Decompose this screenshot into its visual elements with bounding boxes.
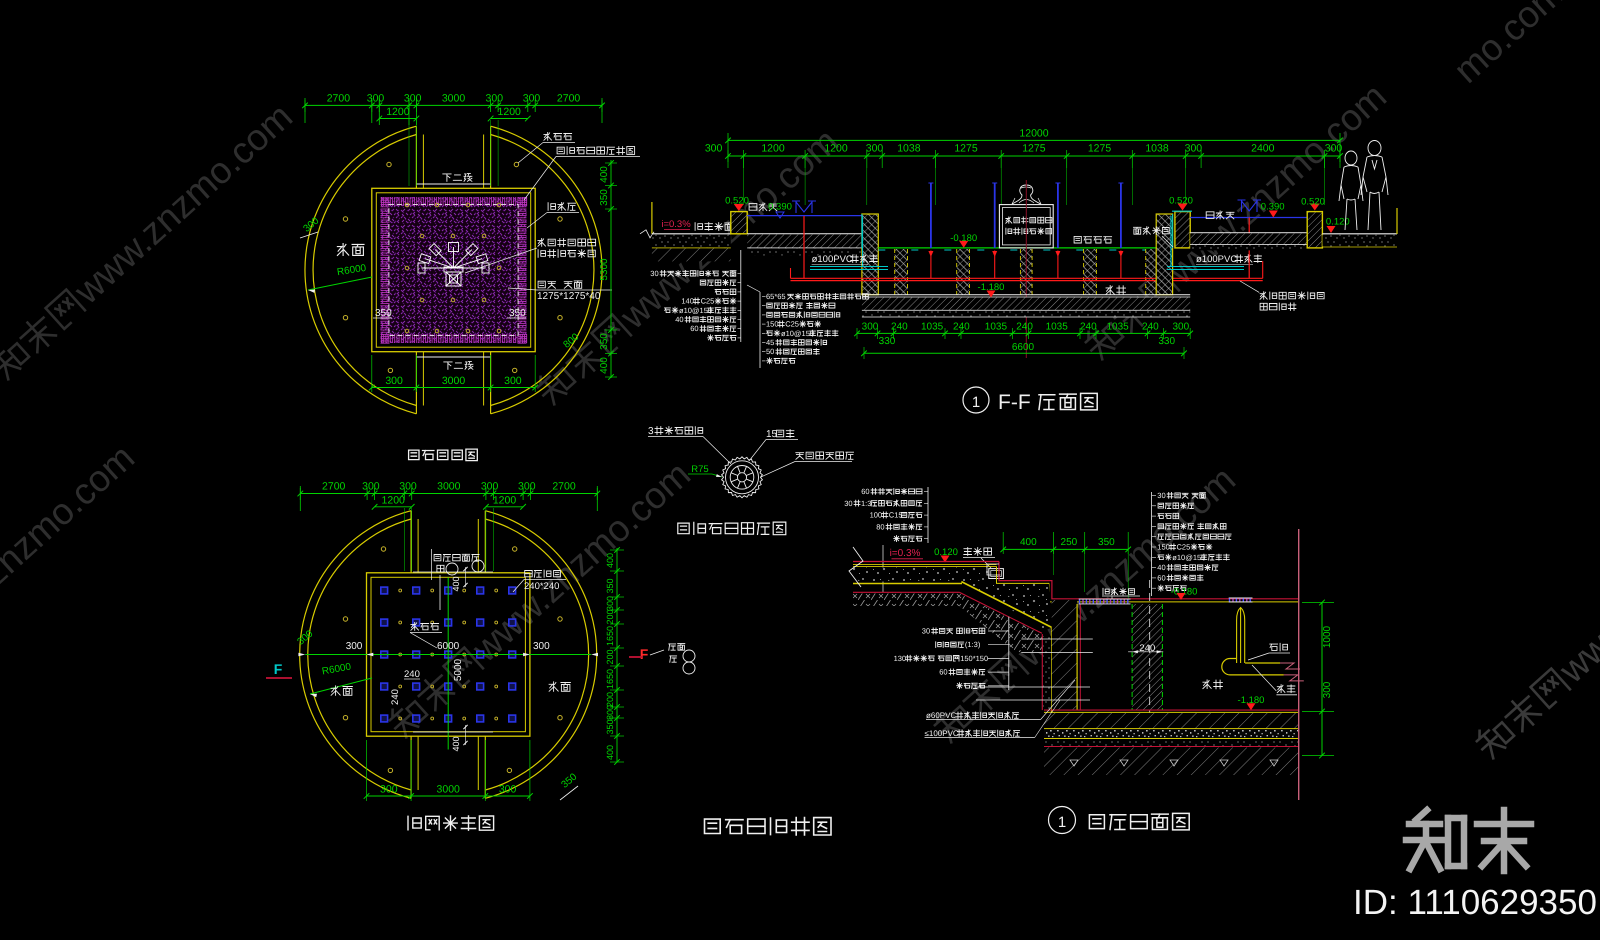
- svg-text:1275: 1275: [1022, 143, 1046, 155]
- svg-text:300: 300: [481, 481, 499, 493]
- svg-text:1: 1: [1058, 814, 1066, 831]
- svg-text:F: F: [640, 646, 649, 662]
- svg-text:1038: 1038: [1145, 143, 1169, 155]
- svg-text:60: 60: [1157, 573, 1165, 582]
- svg-text:0.390: 0.390: [768, 201, 792, 212]
- svg-text:ø10@150: ø10@150: [781, 329, 814, 338]
- svg-text:1275: 1275: [954, 143, 978, 155]
- svg-text:i=0.3%: i=0.3%: [890, 548, 921, 559]
- svg-text:400: 400: [599, 357, 610, 374]
- svg-text:300: 300: [499, 784, 517, 796]
- svg-text:1200: 1200: [761, 143, 785, 155]
- svg-text:350: 350: [1098, 537, 1115, 548]
- svg-text:300: 300: [399, 481, 417, 493]
- svg-text:400: 400: [451, 736, 461, 751]
- svg-text:400: 400: [605, 745, 615, 760]
- svg-text:45: 45: [766, 338, 774, 347]
- svg-text:0.520: 0.520: [725, 195, 749, 206]
- svg-text:3000: 3000: [437, 784, 461, 796]
- svg-text:50: 50: [766, 347, 774, 356]
- svg-text:C25: C25: [1177, 543, 1191, 552]
- svg-text:60: 60: [861, 487, 869, 496]
- svg-text:1035: 1035: [921, 322, 944, 333]
- svg-text:300: 300: [862, 322, 879, 333]
- svg-text:6000: 6000: [437, 641, 460, 652]
- svg-text:30: 30: [1157, 491, 1165, 500]
- svg-text:800: 800: [605, 705, 615, 720]
- svg-text:400: 400: [605, 553, 615, 568]
- svg-text:15: 15: [766, 429, 778, 440]
- svg-text:30: 30: [844, 499, 852, 508]
- svg-text:300: 300: [523, 93, 541, 105]
- svg-text:1650: 1650: [605, 626, 615, 646]
- svg-text:140: 140: [681, 297, 694, 306]
- svg-text:1035: 1035: [1046, 322, 1069, 333]
- svg-text:1200: 1200: [386, 106, 410, 118]
- svg-text:ø100PVC: ø100PVC: [812, 254, 853, 265]
- svg-text:2700: 2700: [552, 481, 576, 493]
- svg-text:ø10@150: ø10@150: [679, 306, 712, 315]
- svg-text:0.520: 0.520: [1169, 195, 1193, 206]
- svg-text:300: 300: [1185, 143, 1203, 155]
- svg-text:330: 330: [1158, 336, 1175, 347]
- svg-text:300: 300: [404, 93, 422, 105]
- svg-text:1650: 1650: [605, 669, 615, 689]
- svg-text:3000: 3000: [442, 375, 466, 387]
- svg-text:200: 200: [605, 692, 615, 707]
- svg-text:300: 300: [362, 481, 380, 493]
- svg-text:C25: C25: [785, 320, 799, 329]
- svg-text:300: 300: [385, 375, 403, 387]
- svg-text:i=0.3%: i=0.3%: [661, 219, 691, 230]
- svg-text:3: 3: [648, 426, 654, 437]
- svg-text:240: 240: [1080, 322, 1097, 333]
- svg-text:350: 350: [509, 308, 526, 319]
- svg-text:-0.180: -0.180: [1171, 587, 1198, 598]
- svg-text:250: 250: [1061, 537, 1078, 548]
- svg-text:1200: 1200: [493, 494, 517, 506]
- svg-text:2700: 2700: [557, 93, 581, 105]
- svg-text:12000: 12000: [1019, 128, 1048, 140]
- svg-text:C15: C15: [889, 511, 903, 520]
- svg-text:400: 400: [599, 166, 610, 183]
- svg-text:ID: 1110629350: ID: 1110629350: [1353, 883, 1597, 922]
- svg-text:2400: 2400: [1251, 143, 1275, 155]
- svg-text:130: 130: [894, 654, 907, 663]
- svg-text:330: 330: [879, 336, 896, 347]
- svg-text:0.520: 0.520: [1301, 197, 1325, 208]
- svg-text:30: 30: [650, 269, 658, 278]
- svg-text:400: 400: [1020, 537, 1037, 548]
- svg-text:100: 100: [870, 511, 883, 520]
- svg-text:300: 300: [533, 641, 550, 652]
- svg-text:150: 150: [766, 320, 779, 329]
- svg-text:300: 300: [605, 596, 615, 611]
- svg-text:80: 80: [876, 522, 884, 531]
- svg-text:300: 300: [1172, 322, 1189, 333]
- svg-text:F: F: [274, 661, 283, 677]
- svg-text:ø100PVC: ø100PVC: [1196, 254, 1237, 265]
- svg-text:300: 300: [1322, 681, 1333, 698]
- svg-text:30: 30: [922, 627, 930, 636]
- svg-text:40: 40: [675, 315, 683, 324]
- svg-text:ø60PVC: ø60PVC: [926, 711, 956, 720]
- svg-text:65*65: 65*65: [766, 292, 786, 301]
- svg-text:F-F: F-F: [998, 391, 1031, 414]
- svg-text:1038: 1038: [897, 143, 921, 155]
- svg-text:3000: 3000: [437, 481, 461, 493]
- svg-text:≤100PVC: ≤100PVC: [925, 729, 959, 738]
- svg-text:2700: 2700: [327, 93, 351, 105]
- svg-text:400: 400: [451, 576, 461, 591]
- svg-text:300: 300: [705, 143, 723, 155]
- svg-text:150: 150: [1157, 543, 1170, 552]
- svg-text:300: 300: [504, 375, 522, 387]
- svg-text:200: 200: [605, 609, 615, 624]
- svg-text:240: 240: [404, 669, 420, 680]
- svg-text:240: 240: [953, 322, 970, 333]
- svg-text:350: 350: [375, 308, 392, 319]
- svg-text:1200: 1200: [498, 106, 522, 118]
- svg-text:300: 300: [1325, 143, 1343, 155]
- svg-text:1200: 1200: [824, 143, 848, 155]
- svg-text:350: 350: [599, 189, 610, 206]
- svg-text:1:3: 1:3: [861, 499, 871, 508]
- svg-text:300: 300: [486, 93, 504, 105]
- svg-text:300: 300: [367, 93, 385, 105]
- svg-text:(1:3): (1:3): [965, 640, 981, 649]
- svg-text:240: 240: [1142, 322, 1159, 333]
- svg-text:200: 200: [605, 649, 615, 664]
- svg-text:350: 350: [605, 578, 615, 593]
- svg-text:1000: 1000: [1322, 625, 1333, 648]
- svg-text:240*240: 240*240: [524, 581, 559, 592]
- svg-text:300: 300: [518, 481, 536, 493]
- svg-text:240: 240: [1016, 322, 1033, 333]
- svg-text:60: 60: [690, 324, 698, 333]
- svg-text:300: 300: [380, 784, 398, 796]
- svg-text:240: 240: [390, 689, 401, 705]
- svg-text:3000: 3000: [442, 93, 466, 105]
- svg-text:300: 300: [866, 143, 884, 155]
- svg-text:240: 240: [891, 322, 908, 333]
- svg-text:150*150: 150*150: [960, 654, 988, 663]
- svg-text:5300: 5300: [599, 258, 610, 281]
- svg-text:350: 350: [605, 719, 615, 734]
- svg-text:350: 350: [599, 333, 610, 350]
- svg-text:R75: R75: [691, 464, 708, 475]
- svg-text:ø10@150: ø10@150: [1172, 553, 1205, 562]
- svg-text:1035: 1035: [1106, 322, 1129, 333]
- svg-text:60: 60: [939, 668, 947, 677]
- svg-text:C25: C25: [701, 297, 715, 306]
- svg-text:1200: 1200: [382, 494, 406, 506]
- svg-text:1275: 1275: [1088, 143, 1112, 155]
- svg-text:40: 40: [1157, 563, 1165, 572]
- svg-text:300: 300: [346, 641, 363, 652]
- svg-text:240: 240: [1139, 643, 1155, 654]
- svg-text:1035: 1035: [985, 322, 1008, 333]
- svg-text:2700: 2700: [322, 481, 346, 493]
- svg-text:5000: 5000: [453, 658, 464, 681]
- svg-text:1: 1: [972, 394, 980, 411]
- svg-text:1275*1275*40: 1275*1275*40: [537, 291, 601, 302]
- svg-text:6600: 6600: [1012, 342, 1035, 353]
